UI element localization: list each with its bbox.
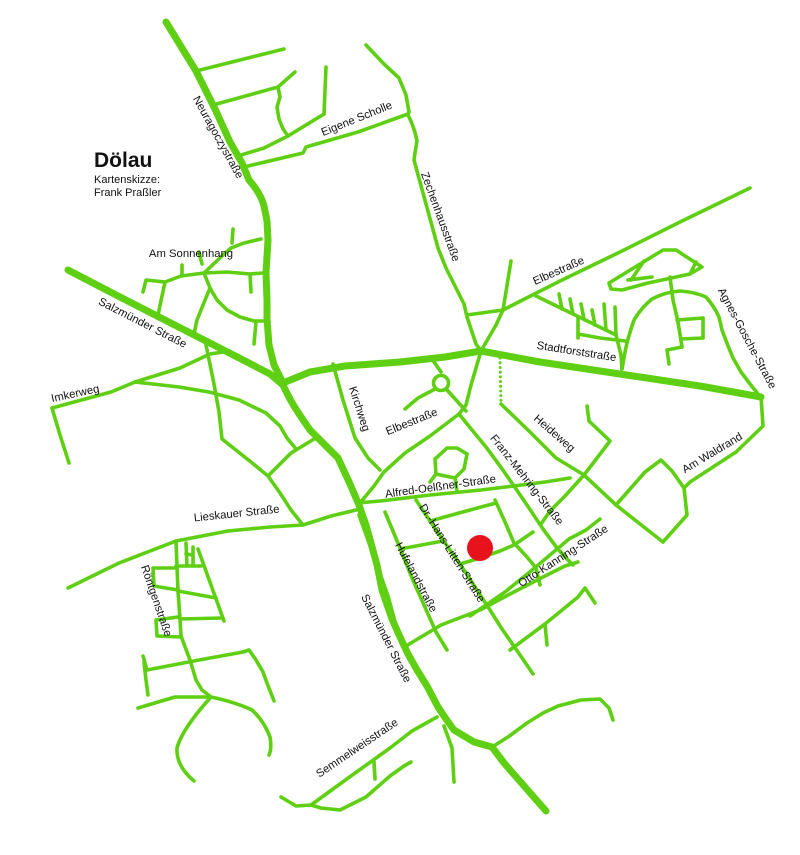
svg-text:Frank Praßler: Frank Praßler [94, 187, 162, 199]
svg-text:Am Sonnenhang: Am Sonnenhang [149, 248, 233, 260]
svg-text:Kartenskizze:: Kartenskizze: [94, 174, 160, 186]
svg-text:Dölau: Dölau [94, 149, 152, 172]
